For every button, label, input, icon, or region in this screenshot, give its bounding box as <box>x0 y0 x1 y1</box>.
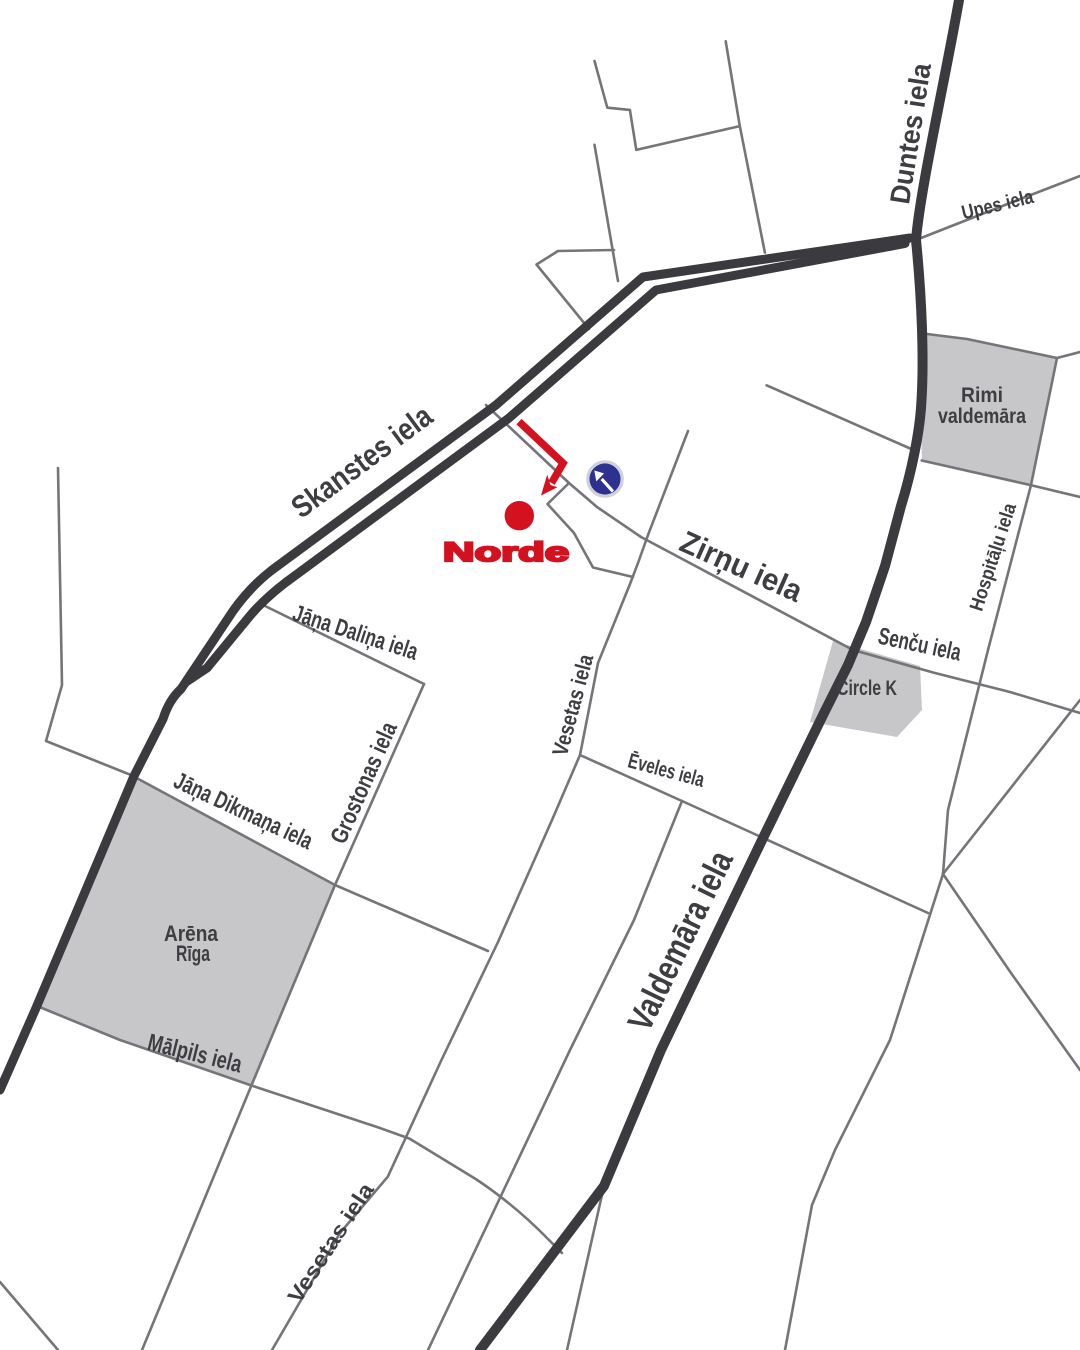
svg-text:valdemāra: valdemāra <box>938 405 1026 428</box>
svg-text:Rimi: Rimi <box>961 384 1003 407</box>
svg-text:Norde: Norde <box>443 537 569 567</box>
svg-text:Rīga: Rīga <box>176 941 211 966</box>
svg-text:Circle K: Circle K <box>837 677 897 700</box>
